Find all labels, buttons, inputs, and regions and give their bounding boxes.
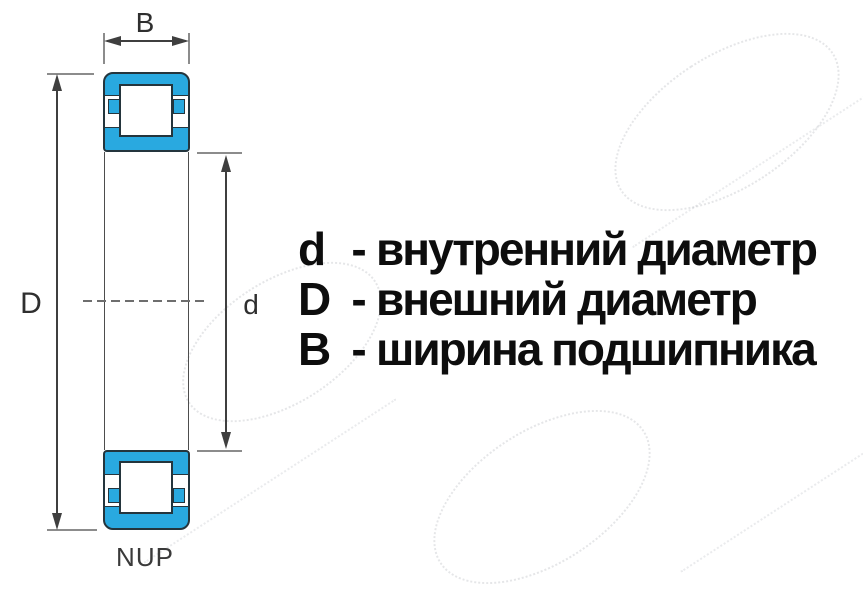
bearing-cross-section-bottom [103, 450, 190, 530]
b-label: B [129, 9, 161, 37]
legend-dash: - [340, 324, 376, 374]
legend-dash: - [340, 274, 376, 324]
d-extension-line-top [197, 152, 242, 154]
bearing-diagram: B D d NUP d - внутренний диаметр D - [0, 0, 863, 599]
D-arrowhead-down-icon [52, 513, 62, 530]
legend-row: D - внешний диаметр [298, 274, 816, 324]
legend-term: ширина подшипника [376, 324, 815, 374]
watermark-mark [403, 374, 681, 599]
b-arrowhead-left-icon [104, 36, 121, 46]
legend-term: внутренний диаметр [376, 224, 816, 274]
watermark-mark [584, 0, 863, 247]
roller [119, 84, 173, 137]
rib-block-right [173, 488, 185, 503]
legend-dash: - [340, 224, 376, 274]
roller [119, 461, 173, 514]
bearing-cross-section-top [103, 72, 190, 152]
D-arrowhead-up-icon [52, 74, 62, 91]
D-dimension-line [56, 88, 58, 514]
axis-centerline [83, 300, 207, 302]
d-arrowhead-down-icon [221, 432, 231, 449]
legend: d - внутренний диаметр D - внешний диаме… [298, 224, 816, 374]
legend-symbol: d [298, 224, 340, 274]
b-arrowhead-right-icon [172, 36, 189, 46]
legend-row: d - внутренний диаметр [298, 224, 816, 274]
legend-symbol: D [298, 274, 340, 324]
d-extension-line-bottom [197, 450, 242, 452]
d-arrowhead-up-icon [221, 155, 231, 172]
d-label: d [240, 291, 262, 319]
bearing-type-label: NUP [108, 544, 182, 570]
legend-term: внешний диаметр [376, 274, 756, 324]
legend-symbol: B [298, 324, 340, 374]
watermark-mark [680, 429, 863, 572]
legend-row: B - ширина подшипника [298, 324, 816, 374]
d-dimension-line [225, 168, 227, 436]
D-label: D [17, 289, 45, 319]
rib-block-right [173, 99, 185, 114]
